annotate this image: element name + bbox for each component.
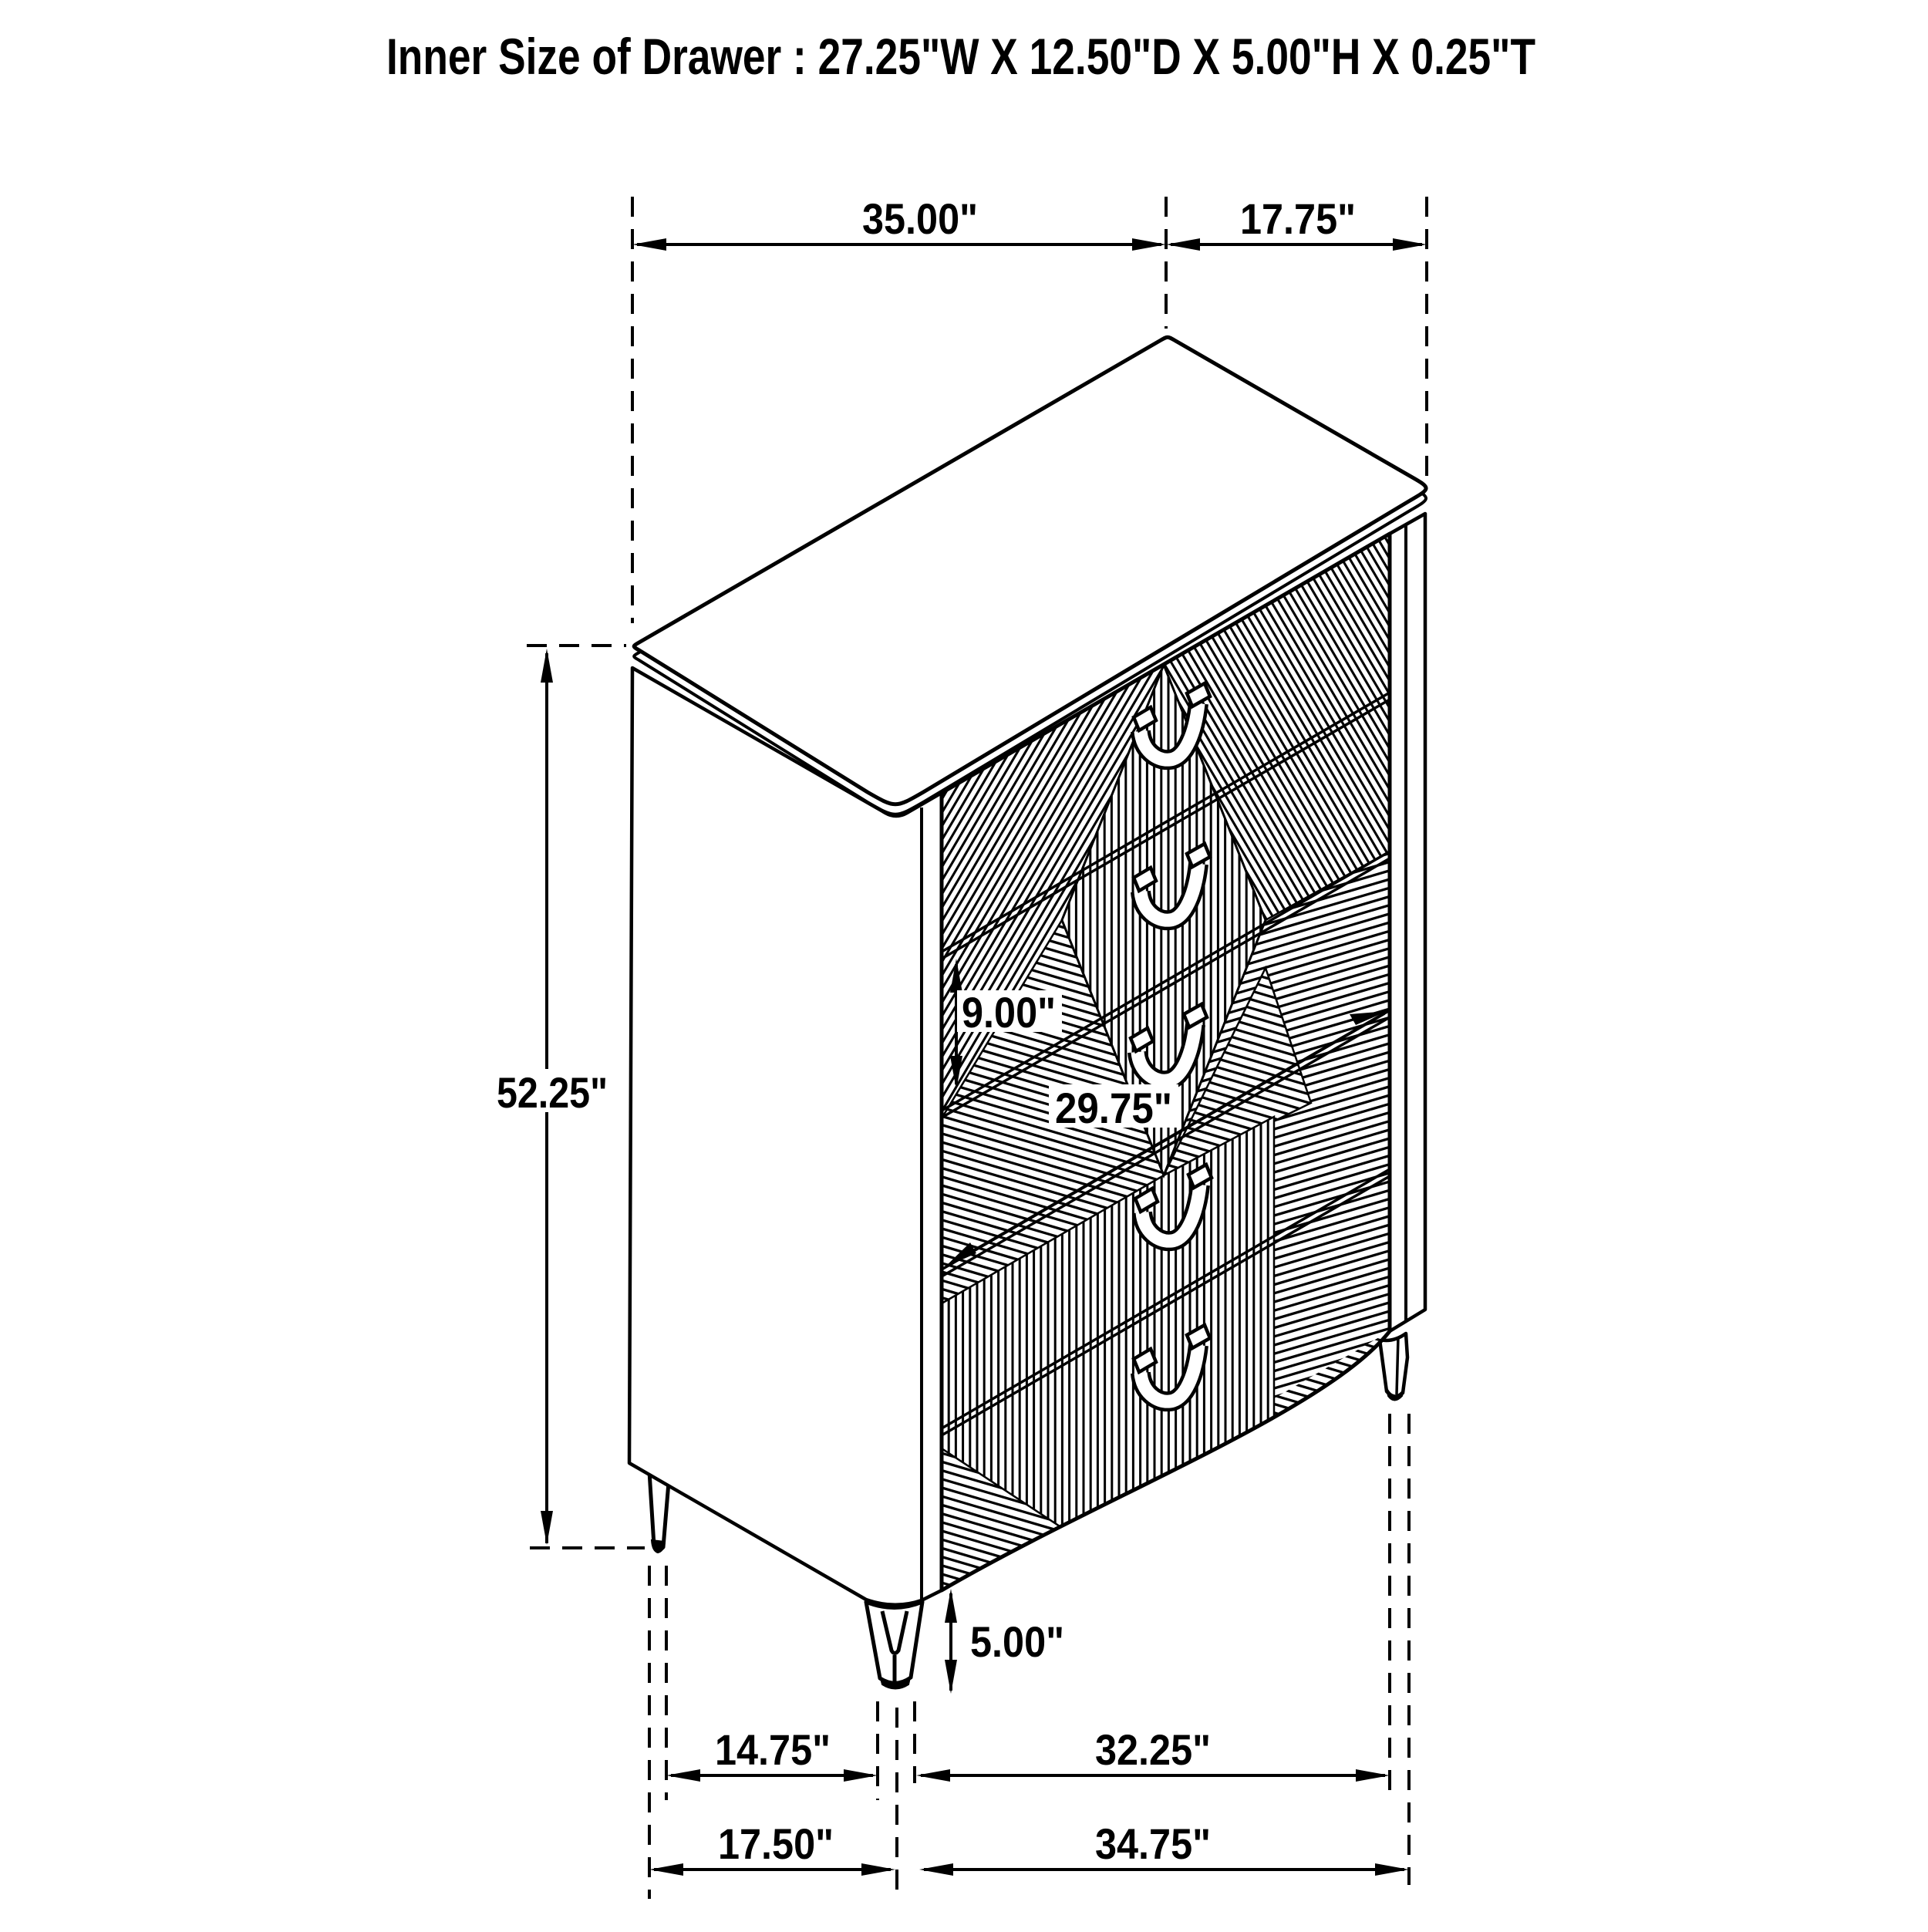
svg-text:34.75": 34.75" xyxy=(1095,1819,1211,1868)
svg-text:32.25": 32.25" xyxy=(1095,1725,1211,1774)
svg-text:29.75": 29.75" xyxy=(1055,1084,1172,1132)
svg-text:35.00": 35.00" xyxy=(862,194,978,243)
svg-text:9.00": 9.00" xyxy=(962,988,1056,1037)
svg-text:17.75": 17.75" xyxy=(1240,194,1356,243)
svg-text:52.25": 52.25" xyxy=(497,1068,608,1117)
svg-text:5.00": 5.00" xyxy=(970,1617,1064,1666)
svg-text:14.75": 14.75" xyxy=(715,1725,831,1774)
svg-text:Inner Size of Drawer : 27.25"W: Inner Size of Drawer : 27.25"W X 12.50"D… xyxy=(386,28,1535,85)
svg-text:17.50": 17.50" xyxy=(718,1819,834,1868)
